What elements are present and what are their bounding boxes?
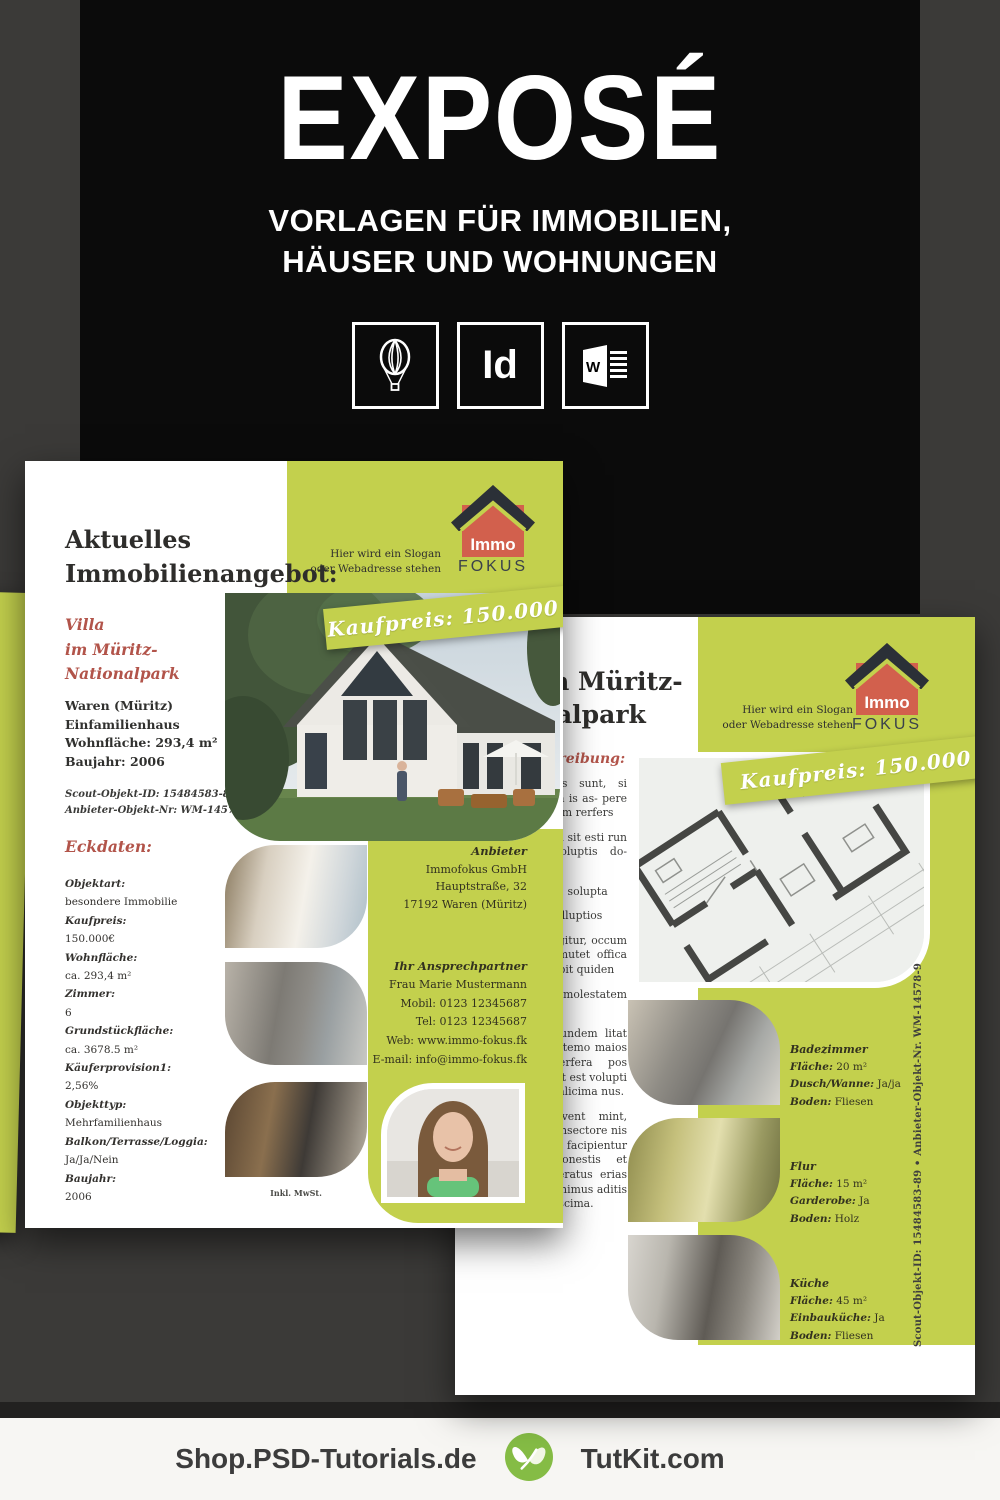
flyer1-mediaroom-photo <box>225 1082 367 1177</box>
flyer2-hallway-photo <box>628 1118 780 1222</box>
logo-roof-icon <box>451 485 535 531</box>
footer-divider <box>0 1402 1000 1418</box>
contact-block: Ihr Ansprechpartner Frau Marie Musterman… <box>372 957 527 1070</box>
app-format-icons: Id W <box>80 322 920 409</box>
flyer2-object-id-vertical: Scout-Objekt-ID: 15484583-89 • Anbieter-… <box>913 1021 924 1347</box>
flyer1-slogan: Hier wird ein Slogan oder Webadresse ste… <box>310 547 441 577</box>
immofokus-logo: Immo FOKUS <box>845 643 929 734</box>
flyer2-bathroom-photo <box>628 1000 780 1105</box>
flyer2-slogan: Hier wird ein Slogan oder Webadresse ste… <box>722 703 853 733</box>
page-title: EXPOSÉ <box>80 58 920 178</box>
flyer1-bathroom-photo <box>225 962 367 1065</box>
flyer1-livingroom-photo <box>225 845 367 948</box>
subtitle-line-1: VORLAGEN FÜR IMMOBILIEN, <box>80 200 920 241</box>
footer: Shop.PSD-Tutorials.de TutKit.com <box>0 1418 1000 1500</box>
room-spec-badezimmer: Badezimmer Fläche: 20 m² Dusch/Wanne: Ja… <box>790 1041 930 1111</box>
svg-text:W: W <box>586 359 601 376</box>
flyer-page-1: Hier wird ein Slogan oder Webadresse ste… <box>25 461 563 1228</box>
contact-person-photo <box>381 1083 525 1203</box>
eckdaten-heading: Eckdaten: <box>65 837 152 856</box>
coreldraw-icon <box>352 322 439 409</box>
promo-image: EXPOSÉ VORLAGEN FÜR IMMOBILIEN, HÄUSER U… <box>0 0 1000 1500</box>
flyer1-heading: Aktuelles Immobilienangebot: <box>65 523 290 591</box>
shop-link[interactable]: Shop.PSD-Tutorials.de <box>175 1443 476 1475</box>
logo-roof-icon <box>845 643 929 689</box>
vat-note: Inkl. MwSt. <box>225 1188 367 1198</box>
subtitle-line-2: HÄUSER UND WOHNUNGEN <box>80 241 920 282</box>
room-spec-kueche: Küche Fläche: 45 m² Einbauküche: Ja Bode… <box>790 1275 930 1345</box>
flyer1-property-title: Villa im Müritz- Nationalpark <box>65 613 180 687</box>
eckdaten-list: Objektart:besondere Immobilie Kaufpreis:… <box>65 875 220 1206</box>
word-icon: W <box>562 322 649 409</box>
anbieter-block: Anbieter Immofokus GmbH Hauptstraße, 32 … <box>403 843 527 913</box>
flyer2-kitchen-photo <box>628 1235 780 1340</box>
flyer1-key-facts: Waren (Müritz) Einfamilienhaus Wohnfläch… <box>65 697 218 771</box>
immofokus-logo: Immo FOKUS <box>451 485 535 576</box>
tutkit-link[interactable]: TutKit.com <box>581 1443 725 1475</box>
room-spec-flur: Flur Fläche: 15 m² Garderobe: Ja Boden: … <box>790 1158 930 1228</box>
indesign-icon: Id <box>457 322 544 409</box>
tutkit-logo-icon <box>505 1433 553 1485</box>
page-subtitle: VORLAGEN FÜR IMMOBILIEN, HÄUSER UND WOHN… <box>80 200 920 282</box>
